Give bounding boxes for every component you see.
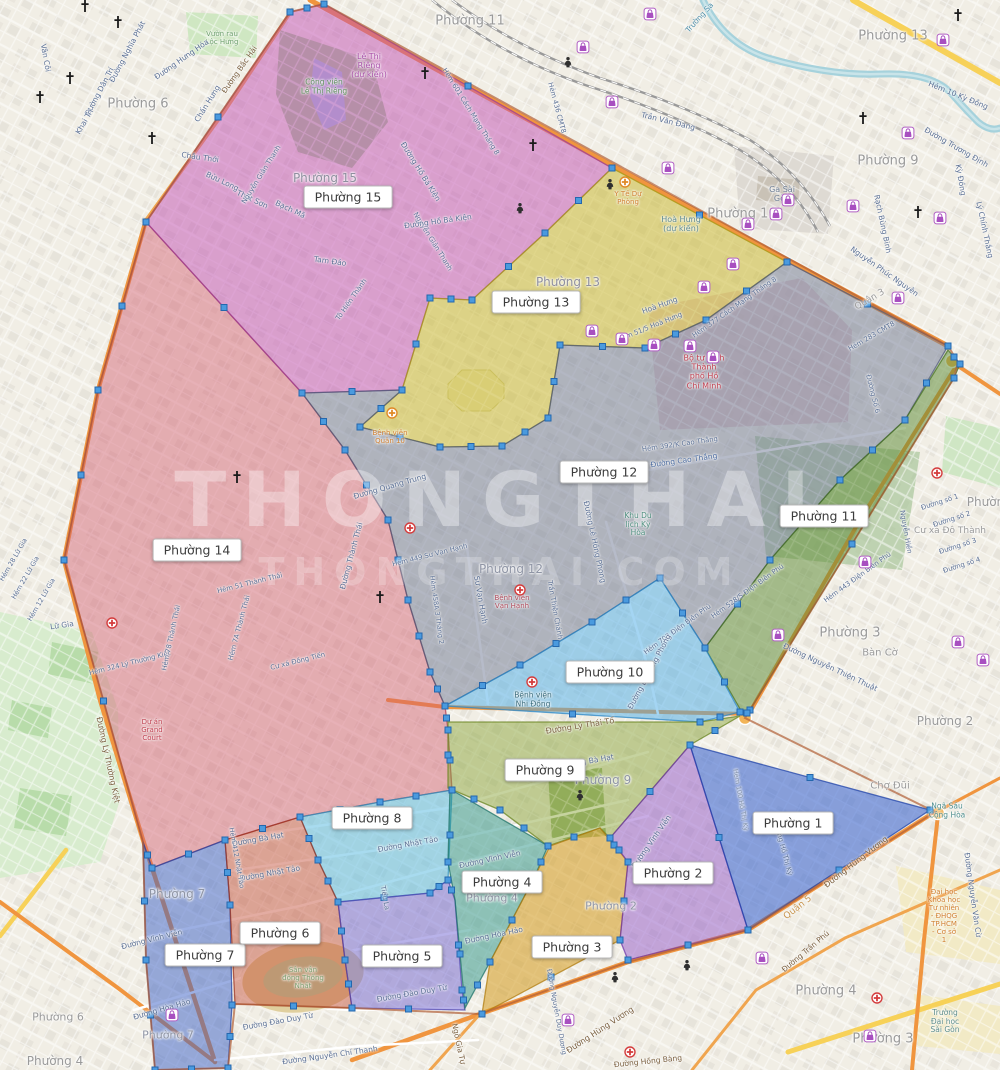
worship-icon[interactable] <box>232 471 242 484</box>
street-label: Hẻm 449 Sư Vạn Hạnh <box>392 543 469 569</box>
ward-label-phuong-10[interactable]: Phường 10 <box>566 661 655 684</box>
shop-icon[interactable] <box>684 340 697 353</box>
shop-icon <box>698 281 710 293</box>
monument-icon[interactable] <box>576 790 585 801</box>
street-label: Trần Văn Đang <box>640 111 696 133</box>
map-viewport: THONGTHAI THONGTHAI.COM Phường 11Phường … <box>0 0 1000 1070</box>
shop-icon <box>562 1014 574 1026</box>
area-label: Sân vận động Thống Nhất <box>282 966 324 990</box>
street-label: Đường Nguyễn Thiện Thuật <box>781 642 878 693</box>
worship-icon <box>376 591 383 603</box>
area-label: Bệnh viện Quận 10 <box>372 429 407 445</box>
area-label: Phường 7 <box>142 1030 194 1043</box>
shop-icon[interactable] <box>772 629 785 642</box>
street-label: Khai Trí <box>74 108 95 136</box>
street-label: Châu Thới <box>181 151 220 165</box>
map-label-layer: Phường 11Phường 13Phường 9Phường 10Hoà H… <box>0 0 1000 1070</box>
area-label: Bệnh viện Nhi Đồng <box>514 691 552 708</box>
street-label: Đường Lý Thái Tổ <box>545 716 615 736</box>
street-label: Tam Đảo <box>313 255 347 268</box>
worship-icon[interactable] <box>420 67 430 80</box>
shop-icon <box>742 218 754 230</box>
street-label: Hẻm 7A Thành Thái <box>228 595 253 662</box>
ward-label-phuong-11[interactable]: Phường 11 <box>780 505 869 528</box>
ward-label-phuong-8[interactable]: Phường 8 <box>332 807 413 830</box>
shop-icon[interactable] <box>782 194 795 207</box>
street-label: Đường Hồ Bá Kiện <box>404 213 473 231</box>
hospital-icon[interactable] <box>514 584 526 596</box>
worship-icon[interactable] <box>858 112 868 125</box>
hospital-icon[interactable] <box>106 617 118 629</box>
shop-icon <box>934 212 946 224</box>
area-label: Phường 3 <box>852 1033 913 1048</box>
area-label: Hoà Hưng (dự kiến) <box>661 215 701 233</box>
shop-icon <box>707 351 719 363</box>
street-label: Hẻm 51 Thành Thái <box>217 572 284 596</box>
area-label: Bàn Cờ <box>862 647 898 659</box>
street-label: Tiểu La <box>378 885 390 910</box>
hospital-icon <box>405 523 415 533</box>
street-label: Hẻm 392/K Cao Thắng <box>642 436 719 454</box>
area-label: Dự án Grand Court <box>141 718 162 742</box>
ward-label-phuong-4[interactable]: Phường 4 <box>462 871 543 894</box>
street-label: Hẻm 78 Thành Thái <box>161 605 183 672</box>
shop-icon[interactable] <box>616 333 629 346</box>
shop-icon[interactable] <box>662 162 675 175</box>
hospital-icon[interactable] <box>624 1046 636 1058</box>
shop-icon <box>577 41 589 53</box>
area-label: Phường 1 <box>967 496 1000 510</box>
street-label: Đường Thành Thái <box>339 522 365 591</box>
area-label: Phường 4 <box>27 1055 83 1069</box>
monument-icon[interactable] <box>606 179 615 190</box>
shop-icon <box>662 162 674 174</box>
worship-icon[interactable] <box>913 206 923 219</box>
street-label: Đường Bắc Hải <box>221 45 260 96</box>
shop-icon[interactable] <box>727 258 740 271</box>
shop-icon[interactable] <box>937 34 950 47</box>
shop-icon <box>648 339 660 351</box>
street-label: Hẻm 283 CMT8 <box>847 321 896 354</box>
monument-icon <box>577 790 583 800</box>
shop-icon <box>606 96 618 108</box>
clinic-icon <box>387 408 397 418</box>
clinic-icon <box>620 177 630 187</box>
street-label: Đường Nghĩa Phát <box>108 20 148 84</box>
street-label: Hẻm 324 Lý Thường Kiệt <box>89 650 172 678</box>
shop-icon[interactable] <box>742 218 755 231</box>
hospital-icon[interactable] <box>931 467 943 479</box>
street-label: Nguyễn Phúc Nguyên <box>848 245 919 298</box>
worship-icon[interactable] <box>65 72 75 85</box>
area-label: Phường 4 <box>795 985 856 1000</box>
street-label: Rạch Bùng Binh <box>872 194 893 254</box>
worship-icon <box>954 9 961 21</box>
shop-icon[interactable] <box>892 292 905 305</box>
street-label: Nguyễn Hiền <box>897 510 912 555</box>
shop-icon[interactable] <box>977 654 990 667</box>
street-label: Đường Hồ Bá Kiện <box>398 141 441 203</box>
street-label: Đường Nhật Tảo <box>239 864 301 883</box>
worship-icon[interactable] <box>80 0 90 13</box>
hospital-icon <box>107 618 117 628</box>
shop-icon[interactable] <box>606 96 619 109</box>
shop-icon[interactable] <box>698 281 711 294</box>
street-label: Lữ Gia <box>50 620 75 632</box>
shop-icon[interactable] <box>586 325 599 338</box>
area-label: Phường 3 <box>819 627 880 642</box>
area-label: Công viên Lê Thị Riêng <box>301 78 347 95</box>
shop-icon <box>782 194 794 206</box>
worship-icon <box>114 16 121 28</box>
monument-icon <box>607 179 613 189</box>
area-label: Quận 5 <box>782 894 814 922</box>
shop-icon[interactable] <box>562 1014 575 1027</box>
shop-icon <box>166 1009 178 1021</box>
worship-icon[interactable] <box>147 132 157 145</box>
ward-label-phuong-1[interactable]: Phường 1 <box>753 812 834 835</box>
ward-label-phuong-12[interactable]: Phường 12 <box>560 461 649 484</box>
area-label: Phường 7 <box>149 888 205 902</box>
street-label: Đường Số 6 <box>863 374 880 414</box>
monument-icon <box>684 960 690 970</box>
street-label: Nguyễn Giản Thanh <box>411 211 453 272</box>
street-label: Hẻm 22 Lữ Gia <box>11 555 42 601</box>
monument-icon[interactable] <box>516 203 525 214</box>
shop-icon[interactable] <box>864 1030 877 1043</box>
street-label: Đường Lê Hồng Phong <box>581 500 607 584</box>
shop-icon[interactable] <box>934 212 947 225</box>
ward-label-phuong-2[interactable]: Phường 2 <box>633 862 714 885</box>
street-label: Đường số 2 <box>932 510 971 529</box>
street-label: Đường Quang Trung <box>353 473 428 502</box>
area-label: Phường 9 <box>857 155 918 170</box>
street-label: Đường Hòa Hảo <box>464 926 524 947</box>
street-label: Hoà Hưng <box>641 296 679 317</box>
clinic-icon[interactable] <box>386 407 398 419</box>
ward-label-phuong-3[interactable]: Phường 3 <box>532 936 613 959</box>
street-label: Đường Đào Duy Từ <box>376 984 448 1005</box>
worship-icon <box>233 471 240 483</box>
monument-icon <box>612 972 618 982</box>
shop-icon <box>684 340 696 352</box>
street-label: Đường Bà Hạt <box>231 831 284 849</box>
street-label: Sư Vạn Hạnh <box>472 575 489 624</box>
street-label: Hẻm 702 Điện Biên Phủ <box>643 603 713 657</box>
area-label: Trường Đại học Sài Gòn <box>931 1009 960 1035</box>
shop-icon <box>616 333 628 345</box>
shop-icon <box>977 654 989 666</box>
monument-icon[interactable] <box>611 972 620 983</box>
street-label: Đường Trương Định <box>923 126 990 170</box>
area-label: Ngã Sáu Cộng Hòa <box>929 802 966 819</box>
shop-icon[interactable] <box>859 556 872 569</box>
ward-label-phuong-9[interactable]: Phường 9 <box>505 759 586 782</box>
shop-icon <box>937 34 949 46</box>
area-label: Phường 15 <box>293 172 357 186</box>
area-label: Phường 2 <box>917 715 973 729</box>
shop-icon[interactable] <box>707 351 720 364</box>
shop-icon[interactable] <box>577 41 590 54</box>
shop-icon <box>727 258 739 270</box>
worship-icon[interactable] <box>35 91 45 104</box>
shop-icon[interactable] <box>166 1009 179 1022</box>
worship-icon <box>148 132 155 144</box>
street-label: Nguyễn Giản Thanh <box>241 144 283 205</box>
monument-icon <box>517 203 523 213</box>
monument-icon[interactable] <box>683 960 692 971</box>
hospital-icon <box>932 468 942 478</box>
area-label: Phường 2 <box>585 901 637 914</box>
ward-label-phuong-7[interactable]: Phường 7 <box>165 944 246 967</box>
street-label: Chấn Hưng <box>193 84 222 124</box>
street-label: Hẻm 12 Lữ Gia <box>27 577 58 623</box>
area-label: Phường 13 <box>858 30 927 45</box>
street-label: Thất Sơn <box>235 189 269 211</box>
worship-icon <box>36 91 43 103</box>
ward-label-phuong-14[interactable]: Phường 14 <box>153 539 242 562</box>
shop-icon[interactable] <box>644 8 657 21</box>
area-label: Y Tế Dự Phòng <box>614 190 641 206</box>
ward-label-phuong-13[interactable]: Phường 13 <box>492 291 581 314</box>
street-label: Hẻm 458A 3 Tháng 2 <box>428 575 445 644</box>
area-label: Phường 6 <box>32 1012 84 1025</box>
street-label: Đường Dân Trí <box>84 66 117 117</box>
area-label: Phường 13 <box>536 276 600 290</box>
area-label: Vườn rau Lộc Hưng <box>206 30 239 46</box>
worship-icon[interactable] <box>113 16 123 29</box>
street-label: Đường Đào Duy Từ <box>242 1012 314 1033</box>
hospital-icon[interactable] <box>404 522 416 534</box>
shop-icon <box>644 8 656 20</box>
area-label: Phường 12 <box>479 563 543 577</box>
area-label: Khu Du lịch Kỳ Hòa <box>624 512 651 538</box>
monument-icon[interactable] <box>564 57 573 68</box>
street-label: Đường Hưng Hóa <box>153 38 211 82</box>
street-label: Đường Nhật Tảo <box>377 835 439 854</box>
shop-icon[interactable] <box>770 208 783 221</box>
street-label: Đường Hòa Hảo <box>132 998 191 1023</box>
street-label: Đường Nguyễn Chí Thanh <box>282 1045 379 1067</box>
area-label: Phường 4 <box>466 893 518 906</box>
area-label: Chợ Đũi <box>870 780 909 792</box>
hospital-icon <box>527 677 537 687</box>
street-label: Đường Vĩnh Viễn <box>458 849 521 870</box>
worship-icon <box>66 72 73 84</box>
street-label: Bạch Mã <box>274 199 307 220</box>
street-label: Đường Lý Thường Kiệt <box>94 716 121 804</box>
street-label: Hẻm 601 Cách Mạng Tháng 8 <box>440 67 500 157</box>
street-label: Vân Côi <box>38 43 51 72</box>
shop-icon[interactable] <box>847 200 860 213</box>
street-label: Đường Hùng Vương <box>822 834 889 889</box>
shop-icon[interactable] <box>902 127 915 140</box>
hospital-icon <box>872 993 882 1003</box>
monument-icon <box>565 57 571 67</box>
street-label: Hẻm 28 Lữ Gia <box>0 537 29 583</box>
shop-icon <box>586 325 598 337</box>
worship-icon <box>529 139 536 151</box>
worship-icon <box>81 0 88 12</box>
street-label: Trần Thiện Chánh <box>545 580 563 640</box>
hospital-icon[interactable] <box>871 992 883 1004</box>
street-label: Đường số 3 <box>938 537 977 556</box>
street-label: Đường Cao Thắng <box>650 452 718 470</box>
shop-icon <box>859 556 871 568</box>
shop-icon <box>756 952 768 964</box>
street-label: Đường Trần Phú <box>780 930 831 975</box>
street-label: Đường Nguyễn Duy Dương <box>545 969 567 1056</box>
shop-icon <box>847 200 859 212</box>
street-label: Cư xá Đồng Tiến <box>270 651 326 672</box>
hospital-icon <box>515 585 525 595</box>
shop-icon <box>770 208 782 220</box>
worship-icon[interactable] <box>528 139 538 152</box>
street-label: Hẻm 436 CMT8 <box>545 82 566 135</box>
worship-icon <box>859 112 866 124</box>
hospital-icon <box>625 1047 635 1057</box>
area-label: Cư xá Đô Thành <box>914 526 986 536</box>
area-label: Lê Thị Riêng (dự kiến) <box>351 52 387 80</box>
ward-label-phuong-15[interactable]: Phường 15 <box>304 186 393 209</box>
worship-icon <box>914 206 921 218</box>
shop-icon[interactable] <box>952 636 965 649</box>
shop-icon <box>902 127 914 139</box>
hospital-icon[interactable] <box>526 676 538 688</box>
street-label: Trường Sa <box>684 1 715 34</box>
worship-icon <box>421 67 428 79</box>
shop-icon <box>952 636 964 648</box>
ward-label-phuong-5[interactable]: Phường 5 <box>362 945 443 968</box>
street-label: Hẻm 528/5 Điện Biên Phủ <box>710 563 785 621</box>
street-label: Tô Hiến Thành <box>335 278 369 322</box>
street-label: Đường Nguyễn Văn Cừ <box>962 852 982 938</box>
shop-icon[interactable] <box>756 952 769 965</box>
area-label: Phường 11 <box>435 15 504 30</box>
ward-label-phuong-6[interactable]: Phường 6 <box>240 922 321 945</box>
shop-icon <box>864 1030 876 1042</box>
street-label: Hẻm 412 Nhật Tảo <box>227 827 245 889</box>
area-label: Quận 3 <box>853 287 886 312</box>
area-label: Phường 6 <box>107 98 168 113</box>
area-label: Đại học Khoa học Tự nhiên - ĐHQG TP.HCM … <box>928 888 960 944</box>
worship-icon[interactable] <box>953 9 963 22</box>
clinic-icon[interactable] <box>619 176 631 188</box>
shop-icon <box>892 292 904 304</box>
shop-icon[interactable] <box>648 339 661 352</box>
area-label: Bệnh viện Vạn Hạnh <box>494 594 529 610</box>
street-label: Hẻm 10 Kỳ Đồng <box>927 80 989 112</box>
street-label: Lý Chính Thắng <box>974 201 994 259</box>
street-label: Kỳ Đồng <box>953 164 967 197</box>
street-label: Bửu Long <box>204 171 240 194</box>
street-label: Đường số 1 <box>920 493 959 512</box>
street-label: Đường số 4 <box>942 556 981 575</box>
street-label: Ngô Gia Tự <box>449 1023 466 1065</box>
street-label: Hẻm 100 Hồ Thị Kỷ <box>731 768 749 831</box>
shop-icon <box>772 629 784 641</box>
worship-icon[interactable] <box>375 591 385 604</box>
